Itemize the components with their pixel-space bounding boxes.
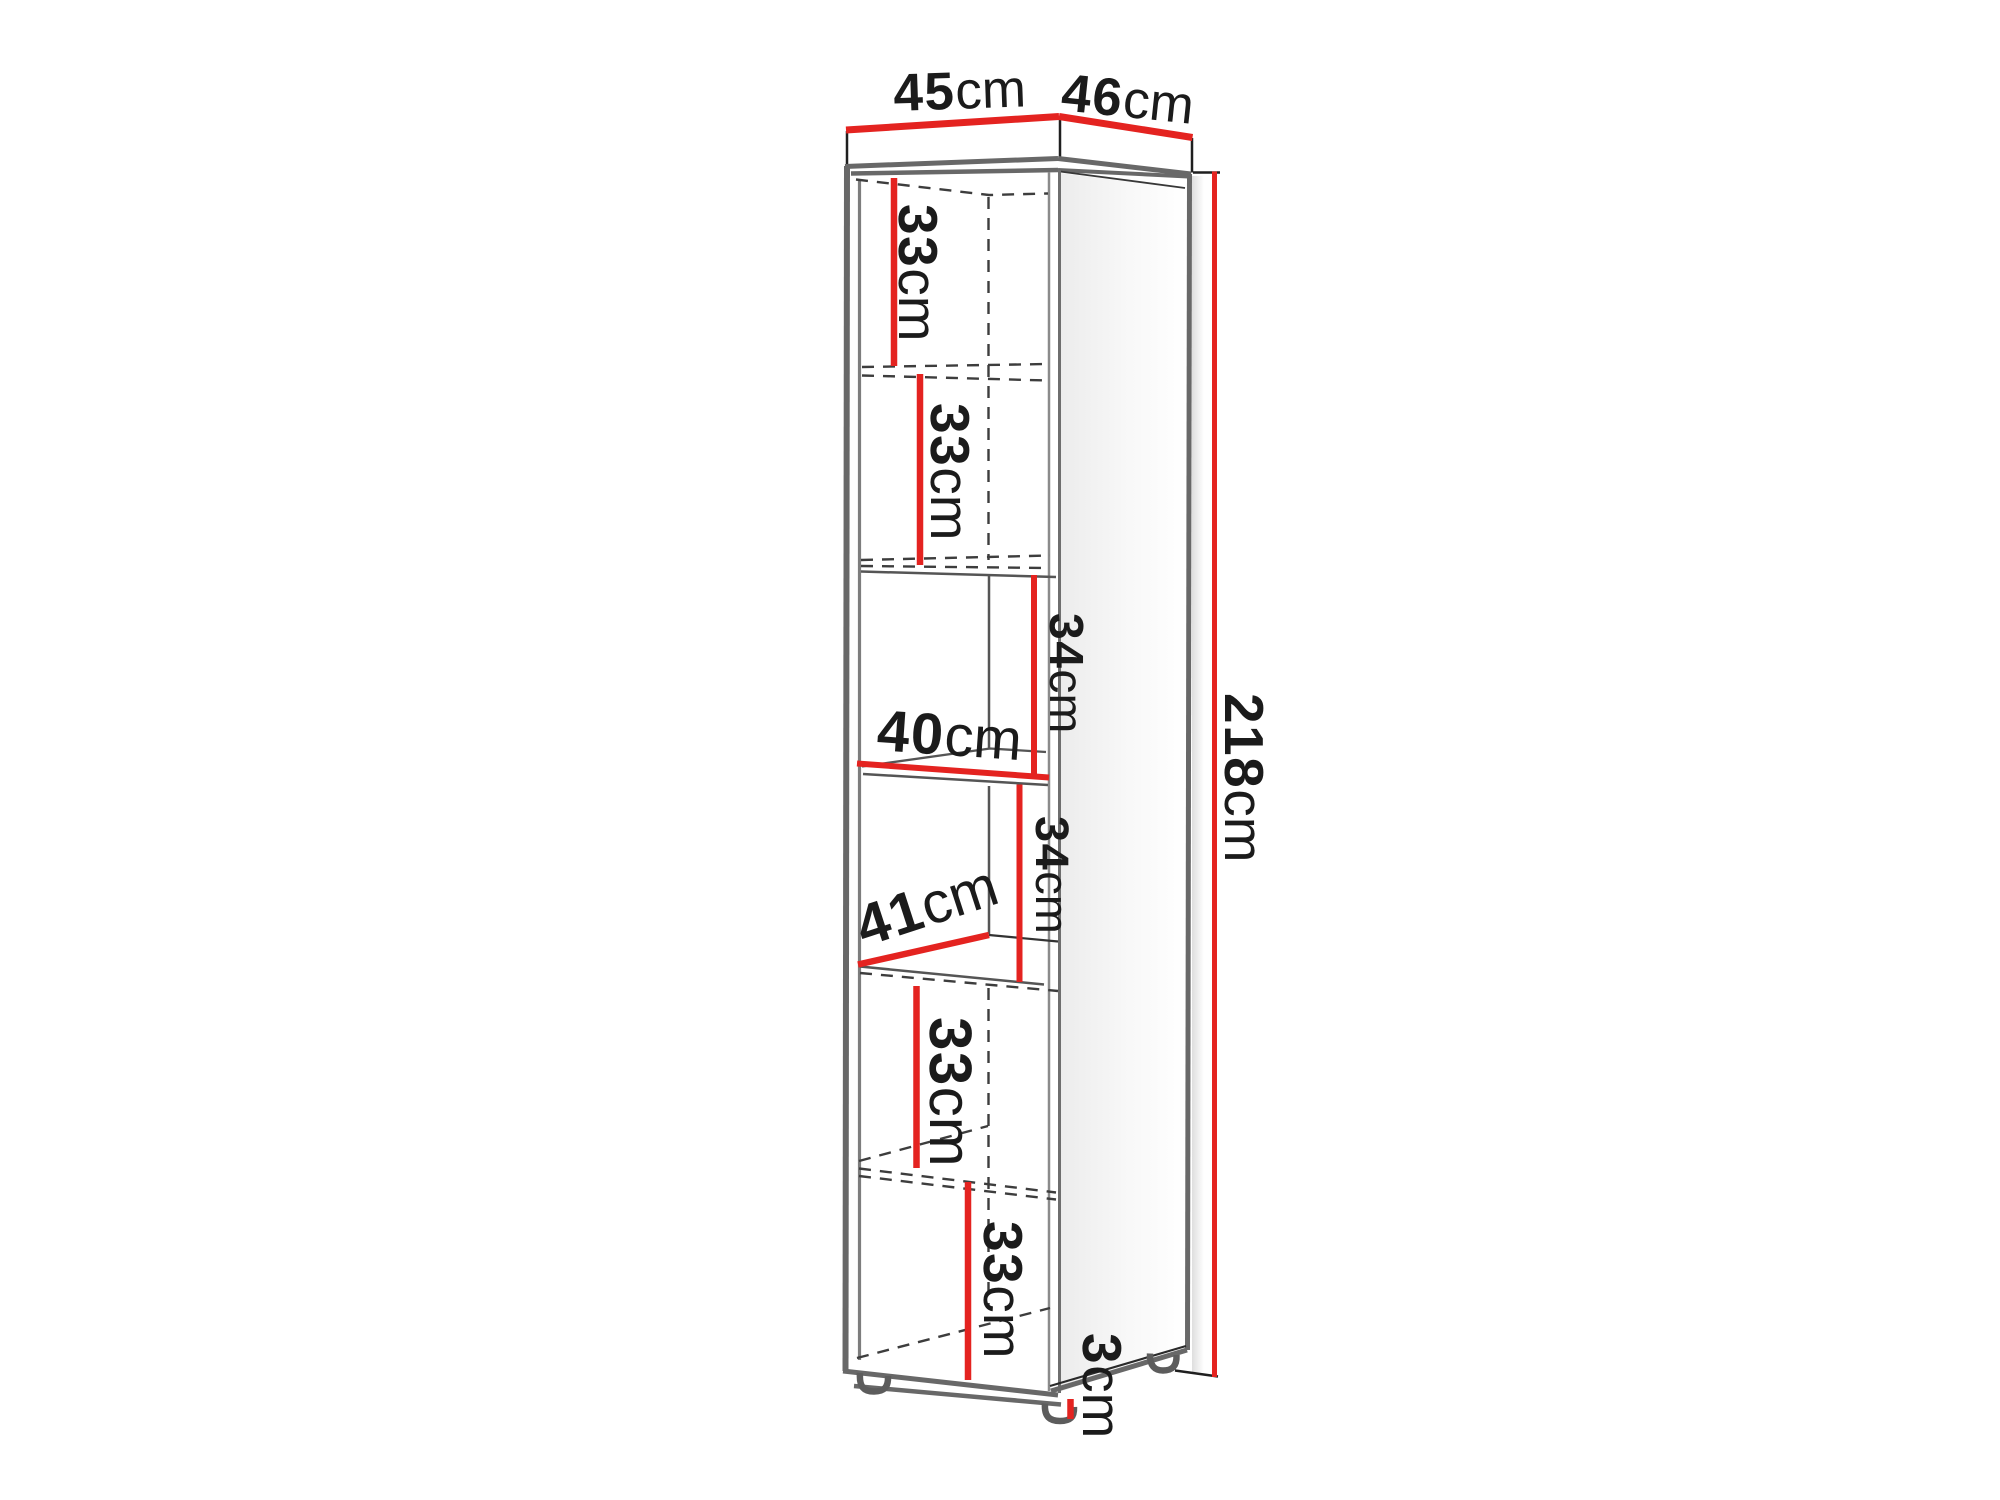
- svg-text:218cm: 218cm: [1213, 693, 1275, 863]
- svg-text:34cm: 34cm: [1039, 613, 1092, 733]
- svg-text:33cm: 33cm: [919, 403, 981, 541]
- svg-text:33cm: 33cm: [917, 1017, 984, 1167]
- svg-text:3cm: 3cm: [1071, 1333, 1133, 1438]
- svg-text:34cm: 34cm: [1026, 816, 1079, 934]
- svg-text:45cm: 45cm: [892, 59, 1027, 123]
- svg-text:40cm: 40cm: [875, 698, 1024, 773]
- svg-text:33cm: 33cm: [972, 1221, 1034, 1359]
- svg-text:33cm: 33cm: [887, 204, 949, 342]
